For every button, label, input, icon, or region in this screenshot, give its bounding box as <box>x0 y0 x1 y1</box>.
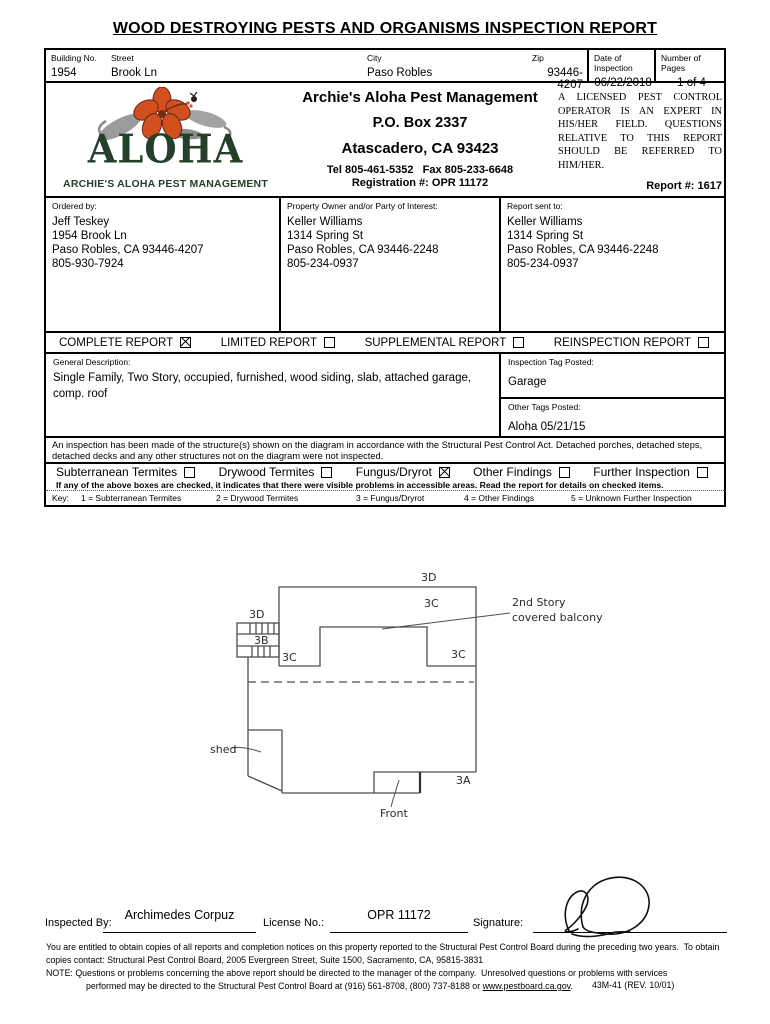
footer-copies-line1: You are entitled to obtain copies of all… <box>46 942 719 952</box>
subterranean-termites-option: Subterranean Termites <box>56 465 195 479</box>
inspection-note: An inspection has been made of the struc… <box>46 438 724 464</box>
diagram-label-3d-left: 3D <box>249 608 264 621</box>
address-row: Building No. 1954 Street Brook Ln City P… <box>46 50 724 83</box>
zip-label: Zip <box>523 53 585 63</box>
other-findings-checkbox <box>559 467 570 478</box>
report-number: Report #: 1617 <box>558 180 722 192</box>
report-sent-to-lines: Keller Williams 1314 Spring St Paso Robl… <box>507 215 718 271</box>
general-description-label: General Description: <box>53 357 492 367</box>
key-item: 4 = Other Findings <box>464 493 571 503</box>
supplemental-report-label: SUPPLEMENTAL REPORT <box>365 337 507 349</box>
tags-column: Inspection Tag Posted: Garage Other Tags… <box>501 354 724 436</box>
building-no-value: 1954 <box>51 67 104 79</box>
key-item: 2 = Drywood Termites <box>216 493 356 503</box>
diagram-label-3c-top: 3C <box>424 597 439 610</box>
zip-cell: Zip 93446-4207 <box>518 50 587 81</box>
limited-report-label: LIMITED REPORT <box>221 337 317 349</box>
property-owner-lines: Keller Williams 1314 Spring St Paso Robl… <box>287 215 493 271</box>
limited-report-option: LIMITED REPORT <box>221 337 335 349</box>
general-description-cell: General Description: Single Family, Two … <box>46 354 501 436</box>
logo-wordmark: ALOHA <box>48 130 283 169</box>
party-line: Jeff Teskey <box>52 215 273 229</box>
other-findings-label: Other Findings <box>473 465 552 479</box>
company-tel-fax: Tel 805-461-5352 Fax 805-233-6648 <box>287 164 553 176</box>
front-porch <box>374 772 420 793</box>
key-row: Key: 1 = Subterranean Termites 2 = Drywo… <box>46 490 724 505</box>
license-no-label: License No.: <box>263 917 324 929</box>
inspected-by-label: Inspected By: <box>45 917 112 929</box>
drywood-termites-checkbox <box>321 467 332 478</box>
party-line: 805-234-0937 <box>287 257 493 271</box>
footer-note-line2-period: . <box>570 981 572 991</box>
drywood-termites-option: Drywood Termites <box>219 465 333 479</box>
pestboard-link: www.pestboard.ca.gov <box>483 981 571 991</box>
footer-note-line2-text: performed may be directed to the Structu… <box>86 981 483 991</box>
subterranean-termites-label: Subterranean Termites <box>56 465 177 479</box>
shed-annotation: shed <box>210 743 236 756</box>
other-tags-value: Aloha 05/21/15 <box>508 421 717 433</box>
street-cell: Street Brook Ln <box>106 50 362 81</box>
further-inspection-checkbox <box>697 467 708 478</box>
signature-label: Signature: <box>473 917 523 929</box>
findings-note: If any of the above boxes are checked, i… <box>46 479 724 490</box>
key-item: 3 = Fungus/Dryrot <box>356 493 464 503</box>
front-annotation: Front <box>380 807 409 820</box>
diagram-label-3a: 3A <box>456 774 471 787</box>
party-line: Keller Williams <box>507 215 718 229</box>
complete-report-option: COMPLETE REPORT <box>59 337 191 349</box>
party-line: 1314 Spring St <box>507 229 718 243</box>
building-no-label: Building No. <box>51 53 104 63</box>
key-item: 1 = Subterranean Termites <box>81 493 216 503</box>
report-sent-to-label: Report sent to: <box>507 201 718 211</box>
city-value: Paso Robles <box>367 67 516 79</box>
party-line: Keller Williams <box>287 215 493 229</box>
report-sent-to-cell: Report sent to: Keller Williams 1314 Spr… <box>499 198 724 331</box>
form-number: 43M-41 (REV. 10/01) <box>592 980 674 990</box>
supplemental-report-option: SUPPLEMENTAL REPORT <box>365 337 525 349</box>
inspected-by-line: Archimedes Corpuz <box>103 908 256 933</box>
diagram-label-3d-top: 3D <box>421 571 436 584</box>
balcony-leader-line <box>382 613 510 629</box>
inspection-report-page: WOOD DESTROYING PESTS AND ORGANISMS INSP… <box>0 0 770 1024</box>
report-type-row: COMPLETE REPORT LIMITED REPORT SUPPLEMEN… <box>46 333 724 354</box>
license-no-line: OPR 11172 <box>330 908 468 933</box>
general-description-text: Single Family, Two Story, occupied, furn… <box>53 370 492 402</box>
company-header-row: ALOHA ARCHIE'S ALOHA PEST MANAGEMENT Arc… <box>46 83 724 198</box>
company-city: Atascadero, CA 93423 <box>287 140 553 157</box>
bottom-edge <box>282 772 476 793</box>
fungus-dryrot-label: Fungus/Dryrot <box>356 465 432 479</box>
city-cell: City Paso Robles <box>362 50 518 81</box>
other-findings-option: Other Findings <box>473 465 570 479</box>
footer-copies-paragraph: You are entitled to obtain copies of all… <box>46 941 736 967</box>
fungus-dryrot-checkbox <box>439 467 450 478</box>
description-row: General Description: Single Family, Two … <box>46 354 724 438</box>
logo-subtitle: ARCHIE'S ALOHA PEST MANAGEMENT <box>48 178 283 190</box>
inspection-tag-cell: Inspection Tag Posted: Garage <box>501 354 724 399</box>
supplemental-report-checkbox <box>513 337 524 348</box>
diagram-label-3c-left: 3C <box>282 651 297 664</box>
fungus-dryrot-option: Fungus/Dryrot <box>356 465 450 479</box>
page-title: WOOD DESTROYING PESTS AND ORGANISMS INSP… <box>0 20 770 38</box>
ordered-by-label: Ordered by: <box>52 201 273 211</box>
footer-copies-line2: copies contact: Structural Pest Control … <box>46 955 483 965</box>
party-line: 805-930-7924 <box>52 257 273 271</box>
ordered-by-lines: Jeff Teskey 1954 Brook Ln Paso Robles, C… <box>52 215 273 271</box>
company-logo: ALOHA ARCHIE'S ALOHA PEST MANAGEMENT <box>48 85 283 195</box>
party-line: 1314 Spring St <box>287 229 493 243</box>
licensed-operator-text: A LICENSED PEST CONTROL OPERATOR IS AN E… <box>558 91 722 172</box>
inspection-date-cell: Date of Inspection 06/22/2018 <box>587 50 654 81</box>
further-inspection-option: Further Inspection <box>593 465 708 479</box>
reinspection-report-option: REINSPECTION REPORT <box>554 337 709 349</box>
company-info: Archie's Aloha Pest Management P.O. Box … <box>287 89 553 189</box>
city-label: City <box>367 53 516 63</box>
property-owner-label: Property Owner and/or Party of Interest: <box>287 201 493 211</box>
complete-report-label: COMPLETE REPORT <box>59 337 173 349</box>
floor-plan-diagram: 3D 3C 3D 3B 3C 3C 3A 2nd Story covered b… <box>0 555 770 835</box>
party-line: Paso Robles, CA 93446-2248 <box>507 243 718 257</box>
shed-outline <box>248 730 282 793</box>
balcony-annotation-line1: 2nd Story <box>512 596 566 609</box>
limited-report-checkbox <box>324 337 335 348</box>
street-value: Brook Ln <box>111 67 360 79</box>
party-line: Paso Robles, CA 93446-2248 <box>287 243 493 257</box>
balcony-annotation-line2: covered balcony <box>512 611 603 624</box>
company-name: Archie's Aloha Pest Management <box>287 89 553 106</box>
other-tags-label: Other Tags Posted: <box>508 402 717 412</box>
other-tags-cell: Other Tags Posted: Aloha 05/21/15 <box>501 399 724 436</box>
building-no-cell: Building No. 1954 <box>46 50 106 81</box>
inspection-tag-label: Inspection Tag Posted: <box>508 357 717 367</box>
subterranean-termites-checkbox <box>184 467 195 478</box>
key-item: 5 = Unknown Further Inspection <box>571 493 724 503</box>
footer-note-line1: NOTE: Questions or problems concerning t… <box>46 968 667 978</box>
reinspection-report-label: REINSPECTION REPORT <box>554 337 691 349</box>
parties-row: Ordered by: Jeff Teskey 1954 Brook Ln Pa… <box>46 198 724 333</box>
ordered-by-cell: Ordered by: Jeff Teskey 1954 Brook Ln Pa… <box>46 198 279 331</box>
party-line: 1954 Brook Ln <box>52 229 273 243</box>
street-label: Street <box>111 53 360 63</box>
findings-items: Subterranean Termites Drywood Termites F… <box>46 465 724 479</box>
balcony-notch <box>279 627 476 666</box>
reinspection-report-checkbox <box>698 337 709 348</box>
inspection-date-label: Date of Inspection <box>594 53 652 73</box>
pages-label: Number of Pages <box>661 53 722 73</box>
further-inspection-label: Further Inspection <box>593 465 690 479</box>
property-owner-cell: Property Owner and/or Party of Interest:… <box>279 198 499 331</box>
company-po-box: P.O. Box 2337 <box>287 115 553 131</box>
drywood-termites-label: Drywood Termites <box>219 465 315 479</box>
findings-row: Subterranean Termites Drywood Termites F… <box>46 464 724 490</box>
key-label: Key: <box>52 493 81 503</box>
pages-cell: Number of Pages 1 of 4 <box>654 50 724 81</box>
complete-report-checkbox <box>180 337 191 348</box>
form-box: Building No. 1954 Street Brook Ln City P… <box>44 48 726 507</box>
company-registration: Registration #: OPR 11172 <box>287 177 553 189</box>
party-line: 805-234-0937 <box>507 257 718 271</box>
diagram-label-3c-right: 3C <box>451 648 466 661</box>
party-line: Paso Robles, CA 93446-4207 <box>52 243 273 257</box>
second-story-outline <box>279 587 476 772</box>
diagram-label-3b: 3B <box>254 634 269 647</box>
inspection-tag-value: Garage <box>508 376 717 388</box>
licensed-operator-block: A LICENSED PEST CONTROL OPERATOR IS AN E… <box>558 91 722 192</box>
handwritten-signature <box>545 865 725 940</box>
